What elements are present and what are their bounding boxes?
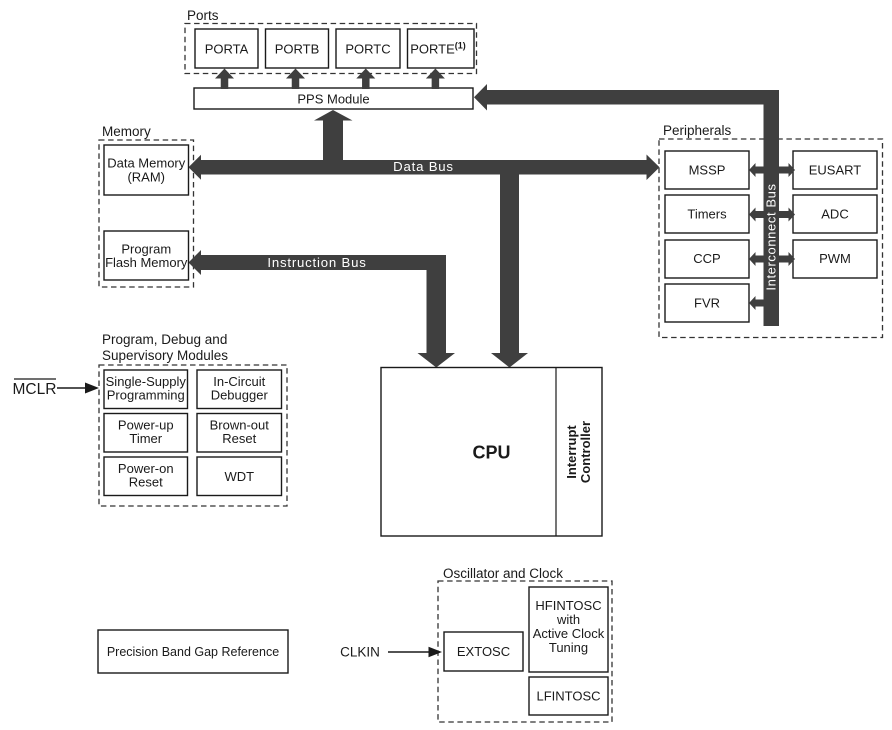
svg-text:PORTB: PORTB [275,42,320,57]
svg-text:Tuning: Tuning [549,640,588,655]
svg-text:Precision Band Gap Reference: Precision Band Gap Reference [107,645,279,659]
svg-text:PORTC: PORTC [345,42,390,57]
svg-text:Program, Debug and: Program, Debug and [102,332,227,347]
svg-text:Active Clock: Active Clock [533,626,605,641]
svg-text:Peripherals: Peripherals [663,123,732,138]
svg-text:PPS Module: PPS Module [297,92,369,107]
svg-text:EXTOSC: EXTOSC [457,644,510,659]
svg-text:Data Bus: Data Bus [393,159,454,174]
svg-text:EUSART: EUSART [809,163,862,178]
svg-text:MSSP: MSSP [689,163,726,178]
svg-text:Programming: Programming [107,388,185,403]
svg-text:WDT: WDT [224,469,254,484]
svg-text:Data Memory: Data Memory [107,156,186,171]
svg-text:Reset: Reset [129,475,163,490]
svg-text:ADC: ADC [821,207,848,222]
svg-text:Memory: Memory [102,124,151,139]
svg-text:PWM: PWM [819,251,851,266]
svg-text:FVR: FVR [694,296,720,311]
svg-text:Oscillator and Clock: Oscillator and Clock [443,566,563,581]
svg-text:Interconnect Bus: Interconnect Bus [764,183,779,290]
svg-text:CPU: CPU [472,443,510,463]
svg-text:Instruction Bus: Instruction Bus [267,255,366,270]
svg-text:Debugger: Debugger [211,388,269,403]
svg-text:CCP: CCP [693,251,720,266]
svg-text:Supervisory Modules: Supervisory Modules [102,348,228,363]
svg-text:CLKIN: CLKIN [340,645,380,660]
svg-text:Reset: Reset [222,431,256,446]
svg-text:LFINTOSC: LFINTOSC [536,689,600,704]
svg-text:HFINTOSC: HFINTOSC [535,598,601,613]
svg-text:Timers: Timers [687,207,727,222]
svg-text:Flash Memory: Flash Memory [105,255,188,270]
svg-text:InterruptController: InterruptController [564,421,593,483]
svg-text:Ports: Ports [187,8,219,23]
svg-text:Timer: Timer [129,431,162,446]
svg-text:with: with [556,612,580,627]
svg-text:MCLR: MCLR [13,381,57,398]
svg-text:(RAM): (RAM) [127,170,165,185]
svg-text:PORTA: PORTA [205,42,249,57]
